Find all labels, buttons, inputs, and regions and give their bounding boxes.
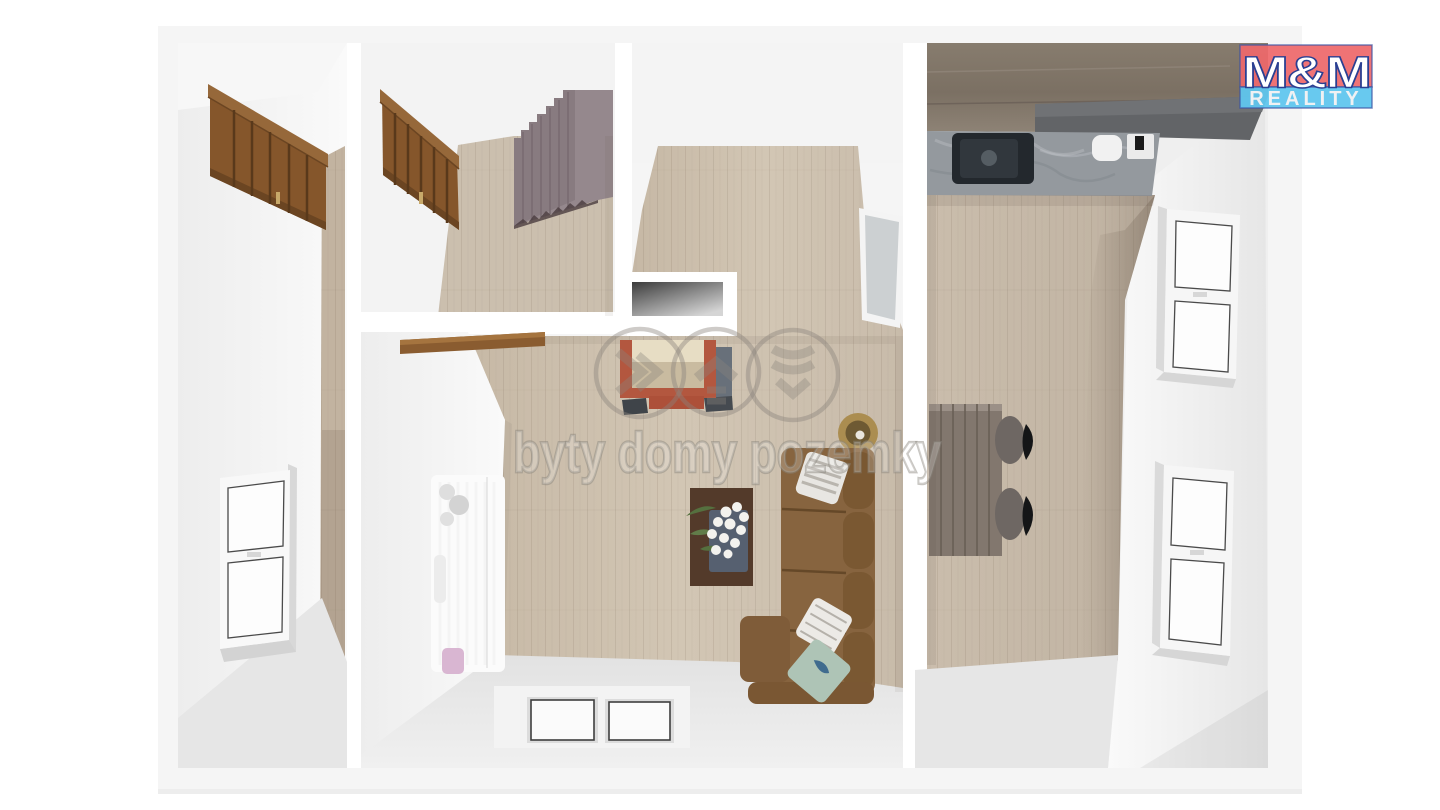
svg-text:REALITY: REALITY: [1249, 88, 1363, 110]
svg-text:byty domy pozemky: byty domy pozemky: [513, 421, 941, 485]
